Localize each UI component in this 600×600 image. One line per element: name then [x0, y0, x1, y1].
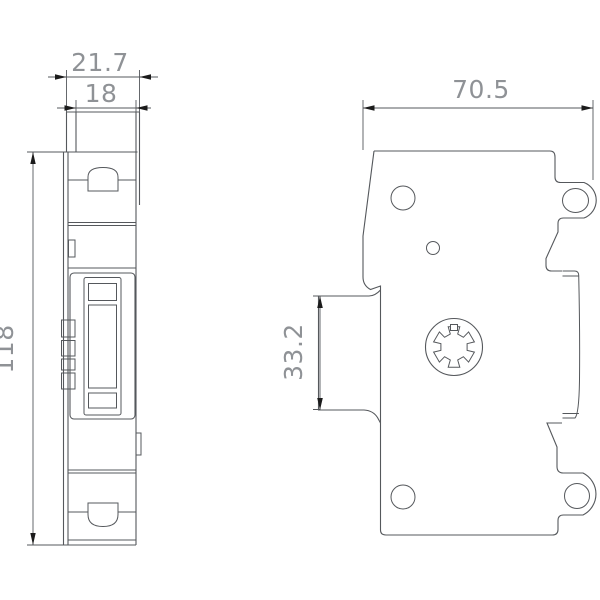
front-right-tab — [136, 433, 141, 455]
side-hole-small — [427, 242, 440, 255]
side-din-block — [319, 290, 381, 423]
arrowhead — [30, 533, 35, 545]
side-hole-upper-left — [391, 186, 415, 210]
dim-outer-width: 21.7 — [48, 48, 158, 80]
front-feature-lines — [68, 180, 136, 540]
dim-label-height: 118 — [0, 324, 19, 373]
front-view — [62, 70, 142, 545]
dim-height: 118 — [0, 152, 64, 545]
front-label-window-bottom — [89, 393, 117, 408]
dimension-drawing-page: 21.7 18 118 — [0, 0, 600, 600]
arrowhead — [140, 74, 152, 79]
side-rail-strip — [563, 271, 580, 418]
front-handle-inner-frame — [84, 278, 121, 416]
side-view — [319, 151, 597, 535]
front-label-window-middle — [89, 305, 117, 388]
side-ear-hole-top — [563, 189, 589, 213]
extension-lines — [27, 152, 64, 545]
front-label-window-top — [89, 284, 117, 301]
arrowhead — [363, 105, 375, 110]
arrowhead — [582, 105, 594, 110]
arrowhead — [65, 105, 77, 110]
side-outline-top-right — [374, 151, 596, 271]
side-spline-hub — [426, 319, 483, 376]
front-handle-frame — [70, 273, 135, 419]
dim-label-din-rail-height: 33.2 — [279, 323, 308, 381]
extension-lines — [363, 100, 593, 180]
dim-label-module-width: 18 — [85, 79, 118, 108]
front-terminal-dome-top — [88, 168, 118, 192]
arrowhead — [136, 105, 148, 110]
arrowhead — [30, 152, 35, 164]
spline-hub-keyway-notch — [451, 325, 458, 331]
dim-label-depth: 70.5 — [452, 75, 510, 104]
front-left-tab — [69, 240, 76, 257]
dimension-drawing: 21.7 18 118 — [0, 0, 600, 600]
side-outline-left-bottom — [363, 151, 553, 535]
side-hole-lower-left — [391, 485, 415, 509]
dim-module-width: 18 — [57, 79, 151, 111]
dim-depth: 70.5 — [363, 75, 593, 180]
spline-hub-teeth — [434, 327, 475, 367]
dim-label-outer-width: 21.7 — [71, 48, 129, 77]
arrowhead — [55, 74, 67, 79]
dim-din-rail-height: 33.2 — [279, 296, 323, 410]
side-rail-strip-caps — [563, 276, 579, 414]
side-ear-hole-bottom — [565, 484, 590, 509]
front-terminal-dome-bottom — [88, 503, 118, 527]
side-outline-lower-right — [547, 423, 596, 535]
